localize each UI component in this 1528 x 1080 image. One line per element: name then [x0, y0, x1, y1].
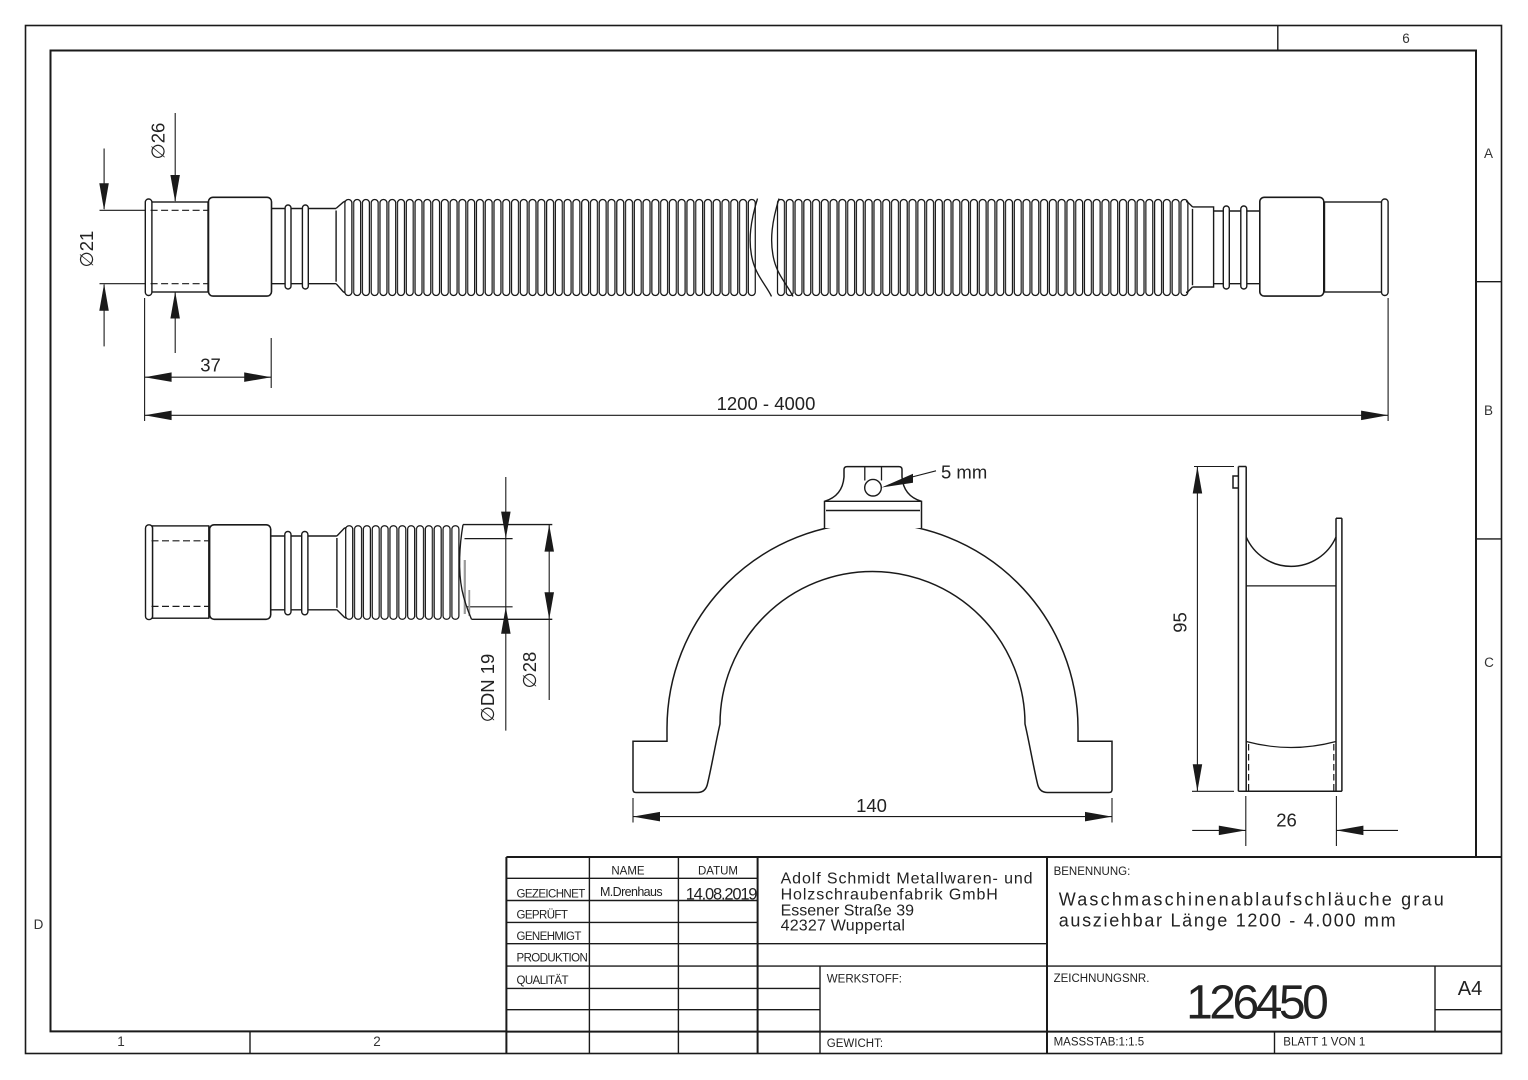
svg-text:Adolf Schmidt Metallwaren- und: Adolf Schmidt Metallwaren- und	[781, 871, 1034, 888]
svg-text:140: 140	[856, 795, 887, 816]
svg-text:A: A	[1484, 146, 1493, 161]
svg-text:NAME: NAME	[611, 866, 645, 878]
svg-text:B: B	[1484, 403, 1493, 418]
svg-text:GENEHMIGT: GENEHMIGT	[517, 931, 582, 943]
svg-text:WERKSTOFF:: WERKSTOFF:	[827, 974, 902, 986]
svg-text:1: 1	[117, 1034, 125, 1049]
svg-text:A4: A4	[1458, 978, 1482, 1000]
svg-text:C: C	[1484, 655, 1494, 670]
svg-text:PRODUKTION: PRODUKTION	[517, 953, 588, 965]
svg-text:∅21: ∅21	[76, 231, 97, 268]
svg-text:95: 95	[1170, 612, 1191, 633]
svg-text:14.08.2019: 14.08.2019	[686, 886, 758, 904]
svg-text:DATUM: DATUM	[698, 866, 738, 878]
svg-text:BLATT 1 VON 1: BLATT 1 VON 1	[1283, 1037, 1365, 1049]
svg-text:Waschmaschinenablaufschläuche: Waschmaschinenablaufschläuche grau	[1059, 890, 1446, 910]
svg-text:1200 - 4000: 1200 - 4000	[717, 393, 816, 414]
svg-text:∅26: ∅26	[148, 123, 169, 160]
svg-text:MASSSTAB:1:1.5: MASSSTAB:1:1.5	[1054, 1037, 1145, 1049]
svg-text:ausziehbar Länge 1200 - 4.000: ausziehbar Länge 1200 - 4.000 mm	[1059, 911, 1398, 931]
svg-text:Holzschraubenfabrik GmbH: Holzschraubenfabrik GmbH	[781, 886, 999, 903]
svg-text:42327 Wuppertal: 42327 Wuppertal	[781, 918, 906, 935]
svg-text:D: D	[34, 917, 44, 932]
svg-text:5 mm: 5 mm	[941, 462, 987, 483]
svg-text:GEWICHT:: GEWICHT:	[827, 1038, 883, 1050]
svg-text:2: 2	[373, 1034, 381, 1049]
svg-text:BENENNUNG:: BENENNUNG:	[1054, 866, 1131, 878]
svg-text:QUALITÄT: QUALITÄT	[517, 975, 569, 987]
svg-text:37: 37	[200, 355, 221, 376]
svg-text:M.Drenhaus: M.Drenhaus	[600, 885, 662, 899]
svg-text:GEZEICHNET: GEZEICHNET	[517, 888, 586, 900]
svg-text:∅28: ∅28	[519, 652, 540, 689]
svg-text:GEPRÜFT: GEPRÜFT	[517, 910, 568, 922]
svg-text:26: 26	[1276, 810, 1297, 831]
svg-text:ZEICHNUNGSNR.: ZEICHNUNGSNR.	[1054, 973, 1150, 985]
svg-text:6: 6	[1402, 31, 1410, 46]
svg-text:∅DN 19: ∅DN 19	[477, 654, 498, 723]
svg-text:126450: 126450	[1186, 977, 1327, 1030]
